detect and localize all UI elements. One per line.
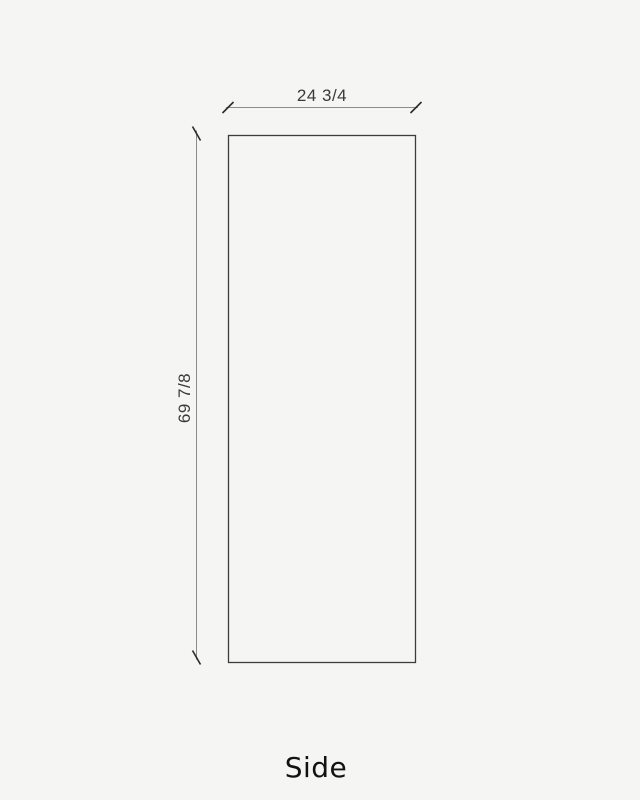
side-panel-dimension-drawing: 24 3/4 69 7/8 Side	[0, 0, 640, 800]
width-dimension-label: 24 3/4	[297, 86, 347, 105]
height-dimension-label: 69 7/8	[175, 373, 194, 423]
view-title: Side	[285, 751, 348, 784]
drawing-canvas: 24 3/4 69 7/8 Side	[0, 0, 640, 800]
panel-outline	[229, 136, 416, 663]
